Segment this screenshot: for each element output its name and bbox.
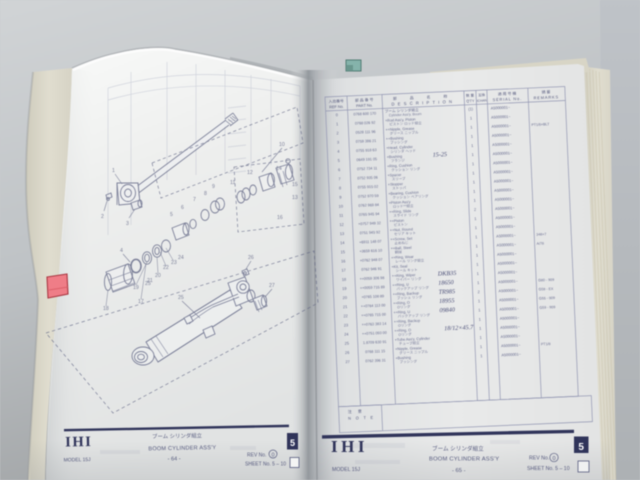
svg-text:Oリング: Oリング xyxy=(397,304,411,310)
svg-text:18: 18 xyxy=(342,277,347,282)
svg-text:5: 5 xyxy=(290,438,295,448)
svg-text:1: 1 xyxy=(470,116,472,121)
svg-text:チューブ組立: チューブ組立 xyxy=(399,340,420,346)
svg-text:16: 16 xyxy=(341,258,346,263)
svg-text:8: 8 xyxy=(204,191,207,197)
svg-text:PT1/8: PT1/8 xyxy=(541,342,551,346)
svg-text:0768 111 15: 0768 111 15 xyxy=(365,349,385,354)
svg-text:1: 1 xyxy=(477,280,479,285)
svg-text:ブッシング: ブッシング xyxy=(390,139,408,145)
svg-text:1: 1 xyxy=(477,271,479,276)
svg-text:フランジ: フランジ xyxy=(391,157,406,163)
svg-text:13: 13 xyxy=(292,195,298,201)
svg-text:12: 12 xyxy=(339,222,344,227)
svg-text:SHEET No. 5 – 10: SHEET No. 5 – 10 xyxy=(527,466,570,472)
svg-text:入出番号: 入出番号 xyxy=(328,98,344,104)
svg-text:TR985: TR985 xyxy=(438,288,455,296)
svg-text:3: 3 xyxy=(337,140,339,145)
svg-text:1: 1 xyxy=(478,307,480,312)
svg-text:G59 - EX: G59 - EX xyxy=(539,287,555,292)
svg-text:27: 27 xyxy=(345,359,350,364)
svg-text:注 意: 注 意 xyxy=(348,408,365,415)
svg-text:6: 6 xyxy=(338,167,340,172)
svg-text:1: 1 xyxy=(480,353,482,358)
svg-text:REV No.: REV No. xyxy=(529,456,549,462)
svg-text:部 品 番 号: 部 品 番 号 xyxy=(355,97,374,103)
svg-text:A/78: A/78 xyxy=(537,241,545,245)
svg-text:19: 19 xyxy=(342,286,347,291)
svg-text:9: 9 xyxy=(212,184,215,190)
svg-text:- 65 -: - 65 - xyxy=(452,468,466,474)
svg-text:IHI: IHI xyxy=(65,434,92,451)
svg-text:REF No.: REF No. xyxy=(329,105,344,110)
svg-text:1: 1 xyxy=(479,326,481,331)
svg-text:ストッパ: ストッパ xyxy=(392,185,407,191)
svg-text:11: 11 xyxy=(230,180,235,186)
svg-text:鋼球: 鋼球 xyxy=(395,249,403,254)
svg-text:1: 1 xyxy=(480,344,482,349)
svg-text:BOOM CYLINDER ASS'Y: BOOM CYLINDER ASS'Y xyxy=(429,457,499,463)
svg-text:5: 5 xyxy=(170,212,173,218)
svg-text:0: 0 xyxy=(271,453,274,459)
svg-text:Oリング: Oリング xyxy=(398,322,412,328)
svg-text:止めねじ: 止めねじ xyxy=(394,240,409,246)
svg-text:Oリング: Oリング xyxy=(398,331,412,337)
svg-text:15-25: 15-25 xyxy=(432,151,447,159)
svg-text:1: 1 xyxy=(472,161,474,166)
svg-text:ICHAN: ICHAN xyxy=(477,98,488,102)
svg-text:26: 26 xyxy=(345,350,350,355)
svg-text:09840: 09840 xyxy=(439,307,456,315)
svg-text:3: 3 xyxy=(126,221,129,227)
svg-text:15: 15 xyxy=(340,249,345,254)
svg-text:20: 20 xyxy=(155,273,161,279)
svg-text:G80 - 909: G80 - 909 xyxy=(538,278,554,283)
svg-text:23: 23 xyxy=(344,322,349,327)
svg-text:1: 1 xyxy=(470,125,472,130)
svg-text:互換: 互換 xyxy=(478,92,486,97)
svg-text:18955: 18955 xyxy=(439,297,455,305)
svg-text:13: 13 xyxy=(340,231,345,236)
svg-text:1: 1 xyxy=(473,198,475,203)
svg-text:22: 22 xyxy=(343,313,348,318)
svg-text:25: 25 xyxy=(344,341,349,346)
svg-text:SHEET No. 5 – 10: SHEET No. 5 – 10 xyxy=(245,462,286,468)
svg-text:1: 1 xyxy=(475,234,477,239)
svg-text:1: 1 xyxy=(475,225,477,230)
svg-text:21: 21 xyxy=(343,304,348,309)
svg-text:11: 11 xyxy=(339,213,343,218)
svg-text:DKB35: DKB35 xyxy=(437,270,457,278)
svg-text:5: 5 xyxy=(578,442,584,453)
svg-text:MODEL 15J: MODEL 15J xyxy=(332,467,360,473)
svg-text:10: 10 xyxy=(279,142,285,148)
svg-text:1: 1 xyxy=(472,170,474,175)
svg-text:セリア キット: セリア キット xyxy=(394,230,416,236)
svg-text:2: 2 xyxy=(474,207,476,212)
svg-text:1: 1 xyxy=(473,189,475,194)
svg-text:1: 1 xyxy=(476,253,478,258)
svg-text:18/12×45.7: 18/12×45.7 xyxy=(444,324,474,332)
svg-text:ピストン: ピストン xyxy=(394,221,409,227)
svg-text:5: 5 xyxy=(338,158,340,163)
svg-text:PT1/8×BLT: PT1/8×BLT xyxy=(531,122,550,127)
svg-text:7: 7 xyxy=(338,176,340,181)
svg-text:6: 6 xyxy=(181,205,184,211)
svg-text:ブーム シリンダ組立: ブーム シリンダ組立 xyxy=(432,445,484,453)
svg-text:スリーブ: スリーブ xyxy=(392,176,406,182)
svg-text:18: 18 xyxy=(103,306,109,312)
svg-text:1: 1 xyxy=(336,121,338,126)
svg-text:MODEL 15J: MODEL 15J xyxy=(64,457,92,464)
svg-text:2: 2 xyxy=(101,214,104,220)
svg-text:1: 1 xyxy=(471,152,473,157)
svg-text:23: 23 xyxy=(171,260,177,266)
svg-text:25: 25 xyxy=(178,295,184,301)
svg-text:1: 1 xyxy=(112,168,115,174)
svg-text:26: 26 xyxy=(248,255,254,261)
svg-text:1: 1 xyxy=(471,134,473,139)
svg-text:18650: 18650 xyxy=(438,279,455,287)
svg-text:1: 1 xyxy=(479,317,481,322)
svg-text:8: 8 xyxy=(339,185,341,190)
svg-text:348×7: 348×7 xyxy=(536,232,546,236)
svg-text:G59 - 909: G59 - 909 xyxy=(539,305,555,310)
svg-text:G55 - 909: G55 - 909 xyxy=(539,296,555,301)
svg-text:1: 1 xyxy=(475,243,477,248)
svg-text:21: 21 xyxy=(147,278,153,284)
svg-text:数 量: 数 量 xyxy=(466,92,475,97)
svg-text:ロッド^^組立: ロッド^^組立 xyxy=(393,203,414,209)
svg-text:REV No.: REV No. xyxy=(247,453,266,459)
svg-text:2: 2 xyxy=(477,289,479,294)
svg-text:17: 17 xyxy=(341,267,346,272)
svg-text:7: 7 xyxy=(193,197,196,203)
svg-text:1: 1 xyxy=(478,298,480,303)
svg-text:PART No.: PART No. xyxy=(356,103,373,108)
svg-text:9: 9 xyxy=(339,194,341,199)
svg-text:ブッシング: ブッシング xyxy=(400,358,418,364)
svg-text:- 64 -: - 64 - xyxy=(168,456,181,462)
svg-text:19: 19 xyxy=(133,285,139,291)
svg-text:12: 12 xyxy=(247,170,253,176)
svg-text:1: 1 xyxy=(479,335,481,340)
svg-text:16: 16 xyxy=(277,215,283,221)
svg-text:1: 1 xyxy=(474,216,476,221)
svg-text:4: 4 xyxy=(120,248,123,254)
svg-text:1: 1 xyxy=(471,143,473,148)
svg-text:15: 15 xyxy=(292,182,298,188)
svg-text:Q'TY: Q'TY xyxy=(466,99,475,103)
svg-text:2: 2 xyxy=(336,130,338,135)
svg-text:0: 0 xyxy=(552,456,555,462)
svg-text:14: 14 xyxy=(276,166,282,172)
svg-text:24: 24 xyxy=(178,255,184,261)
svg-text:27: 27 xyxy=(269,283,275,289)
svg-text:1: 1 xyxy=(473,179,475,184)
svg-text:1: 1 xyxy=(476,262,478,267)
